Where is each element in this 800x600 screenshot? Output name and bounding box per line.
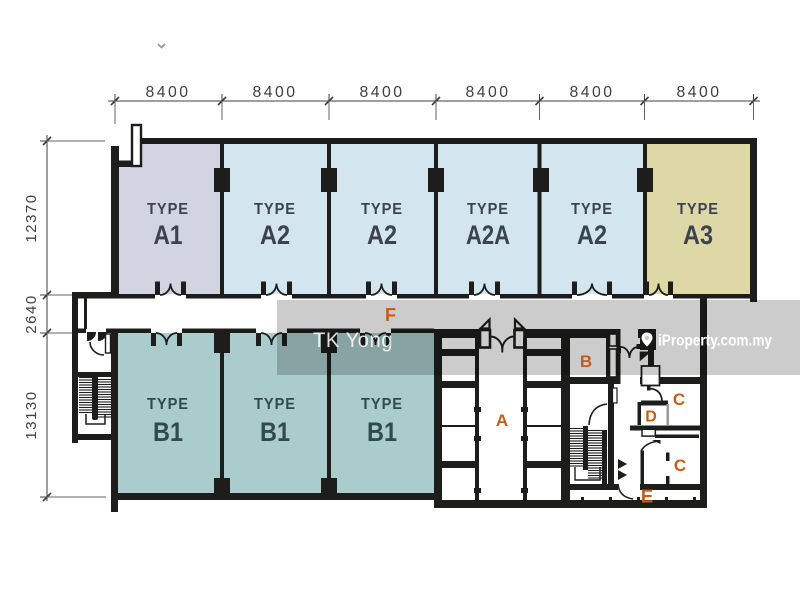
svg-text:TYPE: TYPE — [147, 396, 189, 413]
svg-text:B1: B1 — [260, 417, 290, 447]
svg-text:B: B — [580, 352, 592, 371]
svg-text:A1: A1 — [154, 220, 183, 250]
svg-text:TK Yong: TK Yong — [313, 329, 393, 352]
svg-text:8400: 8400 — [677, 84, 722, 101]
svg-text:TYPE: TYPE — [361, 396, 403, 413]
svg-text:E: E — [641, 486, 653, 507]
svg-text:8400: 8400 — [570, 84, 615, 101]
svg-text:TYPE: TYPE — [677, 201, 719, 218]
svg-text:TYPE: TYPE — [361, 201, 403, 218]
svg-text:TYPE: TYPE — [254, 396, 296, 413]
svg-text:8400: 8400 — [146, 84, 191, 101]
svg-text:13130: 13130 — [23, 390, 40, 439]
svg-text:B1: B1 — [153, 417, 183, 447]
svg-text:A2A: A2A — [466, 220, 510, 250]
svg-text:A2: A2 — [260, 220, 290, 250]
svg-text:A3: A3 — [683, 220, 713, 250]
svg-text:12370: 12370 — [23, 193, 40, 242]
svg-text:TYPE: TYPE — [254, 201, 296, 218]
svg-text:8400: 8400 — [466, 84, 511, 101]
svg-text:F: F — [385, 305, 396, 325]
svg-text:A2: A2 — [367, 220, 397, 250]
svg-text:8400: 8400 — [360, 84, 405, 101]
svg-text:TYPE: TYPE — [467, 201, 509, 218]
svg-text:C: C — [673, 390, 685, 409]
svg-text:TYPE: TYPE — [147, 201, 189, 218]
svg-text:D: D — [645, 409, 657, 426]
svg-text:iProperty.com.my: iProperty.com.my — [658, 333, 772, 350]
svg-text:TYPE: TYPE — [571, 201, 613, 218]
svg-text:8400: 8400 — [253, 84, 298, 101]
svg-text:C: C — [674, 456, 686, 475]
svg-text:A2: A2 — [577, 220, 607, 250]
svg-text:2640: 2640 — [23, 294, 40, 333]
svg-text:A: A — [496, 411, 508, 430]
svg-text:B1: B1 — [367, 417, 397, 447]
